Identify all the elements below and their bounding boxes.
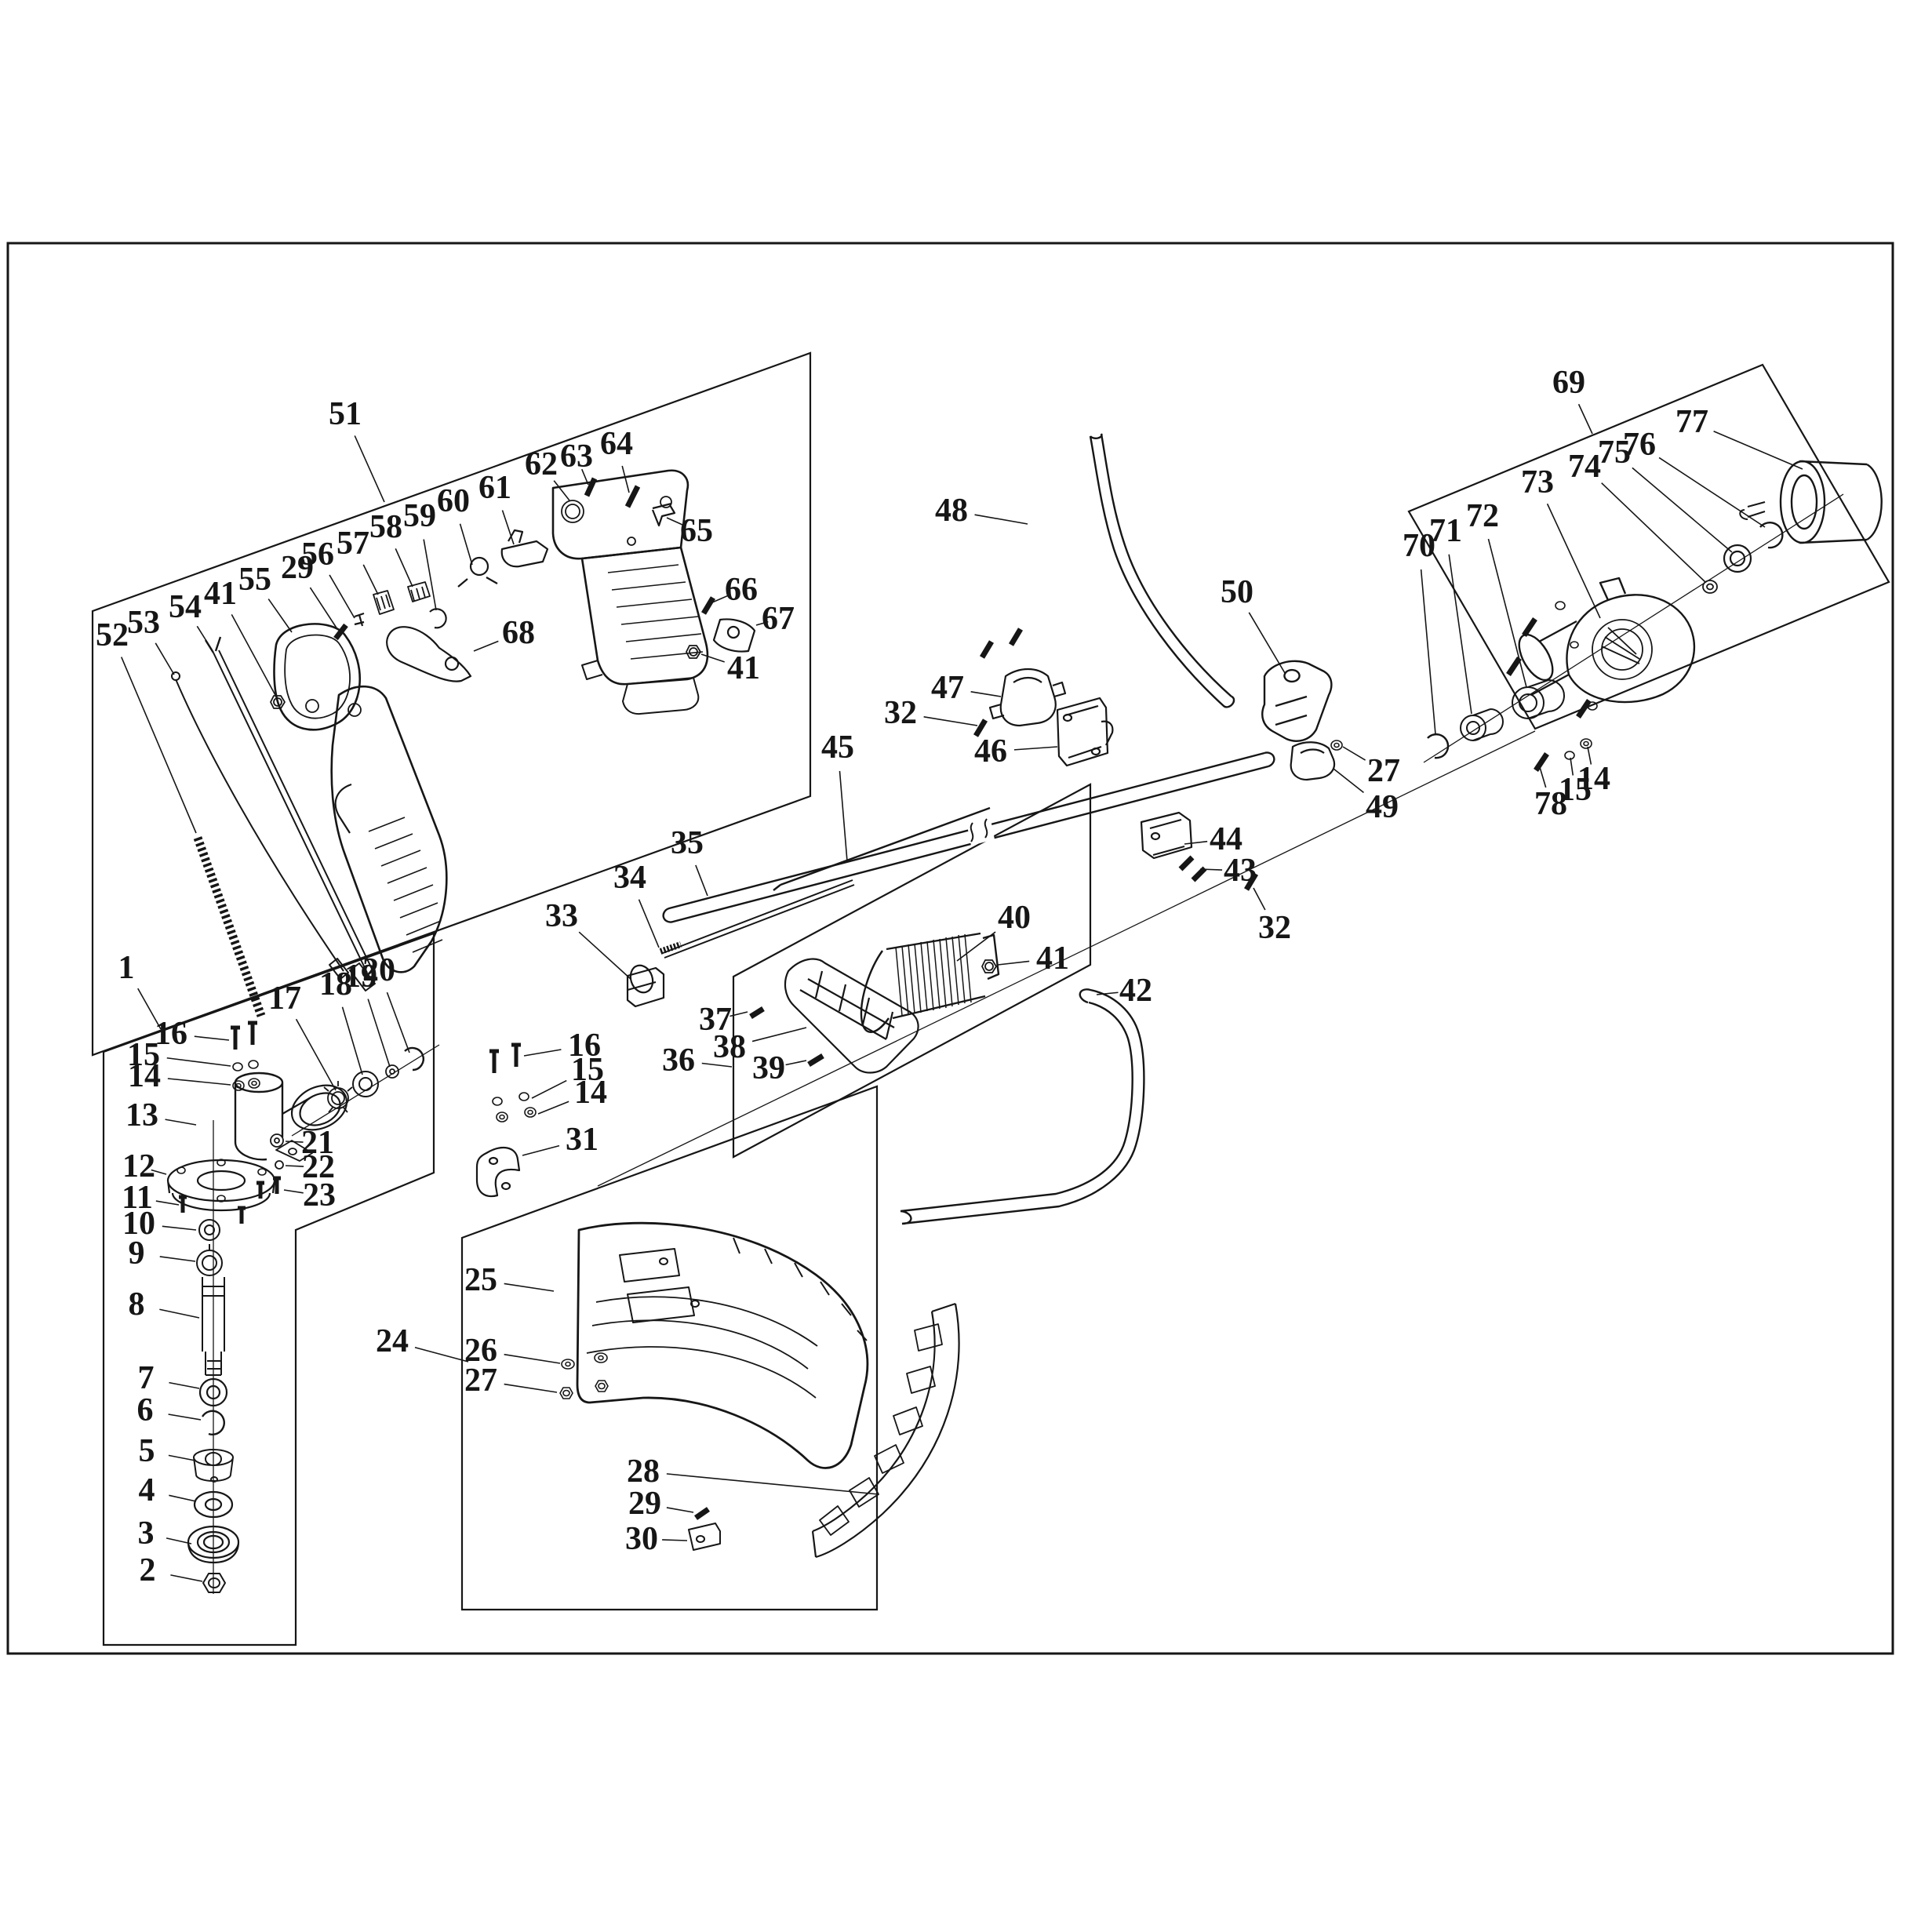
part-number-label-27: 27 <box>1367 753 1400 789</box>
page-background <box>0 0 1932 1932</box>
part-number-label-55: 55 <box>238 562 271 598</box>
part-number-label-71: 71 <box>1429 513 1462 549</box>
part-number-label-49: 49 <box>1366 789 1399 825</box>
part-number-label-8: 8 <box>129 1286 145 1323</box>
part-number-label-44: 44 <box>1210 821 1243 857</box>
part-number-label-41: 41 <box>1036 941 1069 977</box>
part-number-label-34: 34 <box>613 860 646 896</box>
part-number-label-61: 61 <box>478 470 511 506</box>
part-number-label-74: 74 <box>1568 449 1601 485</box>
part-number-label-35: 35 <box>671 825 704 861</box>
part-number-label-28: 28 <box>627 1454 660 1490</box>
part-number-label-46: 46 <box>974 733 1007 770</box>
part-number-label-57: 57 <box>337 526 369 562</box>
part-number-label-31: 31 <box>566 1122 599 1158</box>
part-number-label-51: 51 <box>329 396 362 432</box>
part-number-label-60: 60 <box>437 483 470 519</box>
part-number-label-64: 64 <box>600 426 633 462</box>
part-number-label-23: 23 <box>303 1177 336 1213</box>
part-number-label-66: 66 <box>725 572 758 608</box>
part-number-label-30: 30 <box>625 1521 658 1557</box>
part-number-label-14: 14 <box>1577 761 1610 797</box>
part-number-label-39: 39 <box>752 1050 785 1086</box>
part-number-label-53: 53 <box>127 605 160 641</box>
part-number-label-62: 62 <box>525 446 558 482</box>
part-number-label-40: 40 <box>998 900 1031 936</box>
part-number-label-1: 1 <box>118 950 135 986</box>
part-number-label-63: 63 <box>560 438 593 475</box>
part-number-label-29: 29 <box>628 1486 661 1522</box>
part-number-label-45: 45 <box>821 730 854 766</box>
part-number-label-33: 33 <box>545 898 578 934</box>
part-number-label-29: 29 <box>281 550 314 586</box>
part-number-label-6: 6 <box>137 1392 154 1428</box>
part-number-label-25: 25 <box>464 1262 497 1298</box>
part-number-label-52: 52 <box>96 617 129 653</box>
part-number-label-14: 14 <box>574 1075 607 1111</box>
part-number-label-68: 68 <box>502 615 535 651</box>
part-number-label-24: 24 <box>376 1323 409 1359</box>
part-number-label-20: 20 <box>362 952 395 988</box>
part-number-label-5: 5 <box>139 1433 155 1469</box>
part-number-label-36: 36 <box>662 1042 695 1079</box>
part-number-label-2: 2 <box>140 1552 156 1588</box>
part-number-label-16: 16 <box>155 1016 187 1052</box>
part-number-label-54: 54 <box>169 589 202 625</box>
part-number-label-7: 7 <box>138 1360 155 1396</box>
part-number-label-47: 47 <box>931 670 964 706</box>
part-number-label-48: 48 <box>935 493 968 529</box>
part-number-label-13: 13 <box>126 1097 158 1133</box>
part-number-label-73: 73 <box>1521 464 1554 500</box>
part-number-label-50: 50 <box>1221 574 1253 610</box>
diagram-page: 1234567891011121314151617181920212223242… <box>0 0 1932 1932</box>
part-number-label-42: 42 <box>1119 973 1152 1009</box>
part-number-label-72: 72 <box>1466 498 1499 534</box>
part-number-label-77: 77 <box>1675 404 1708 440</box>
part-number-label-41: 41 <box>204 576 237 612</box>
part-number-label-38: 38 <box>713 1029 746 1065</box>
part-number-label-32: 32 <box>1258 910 1291 946</box>
part-number-label-17: 17 <box>268 981 301 1017</box>
part-number-label-32: 32 <box>884 695 917 731</box>
part-number-label-67: 67 <box>762 601 795 637</box>
part-number-label-58: 58 <box>369 509 402 545</box>
part-number-label-3: 3 <box>138 1515 155 1552</box>
part-number-label-27: 27 <box>464 1363 497 1399</box>
part-number-label-43: 43 <box>1224 853 1257 889</box>
part-number-label-11: 11 <box>122 1180 153 1216</box>
part-number-label-76: 76 <box>1623 427 1656 463</box>
leader-line-43-44 <box>1200 869 1222 870</box>
part-number-label-65: 65 <box>680 513 713 549</box>
leader-line-30-29 <box>662 1540 687 1541</box>
part-number-label-12: 12 <box>122 1148 155 1184</box>
part-number-label-69: 69 <box>1552 365 1585 401</box>
leader-line-22-21 <box>286 1166 304 1166</box>
part-number-label-41: 41 <box>727 650 760 686</box>
part-number-label-4: 4 <box>139 1472 155 1508</box>
part-number-label-59: 59 <box>403 498 436 534</box>
parts-diagram-svg: 1234567891011121314151617181920212223242… <box>0 0 1932 1932</box>
